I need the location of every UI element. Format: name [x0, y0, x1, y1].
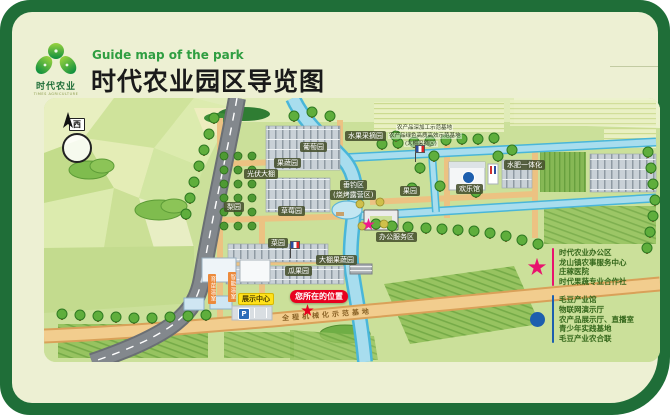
map-label: 农产品深加工示范基地	[396, 125, 453, 131]
parking-icon: P	[238, 308, 250, 320]
map-label: 农产品绿色高质高效示范基地	[388, 133, 462, 139]
legend-item: 农产品展示厅、直播室	[559, 315, 634, 325]
map-label: 果园	[400, 186, 420, 196]
map-label: 光伏大棚	[244, 169, 278, 179]
star-pink-marker-icon	[362, 218, 375, 231]
legend: 时代农业办公区龙山镇农事服务中心庄稼医院时代果蔬专业合作社 毛豆产业馆物联网演示…	[522, 248, 658, 352]
map-label: 垂钓区	[340, 180, 367, 190]
map-label: 大棚果蔬园	[316, 255, 357, 265]
map-label: 葡萄园	[300, 142, 327, 152]
legend-item: 龙山镇农事服务中心	[559, 258, 627, 268]
legend-dot-divider	[552, 295, 554, 343]
map-label: 水果采摘园	[345, 131, 386, 141]
you-are-here-label: 您所在的位置	[290, 290, 348, 303]
map-label: 育苗温室	[208, 274, 216, 304]
logo-title: 时代农业	[28, 82, 84, 92]
map-label: 欢乐馆	[456, 184, 483, 194]
green-frame: 时代农业 TIMES AGRICULTURE Guide map of the …	[0, 0, 670, 415]
legend-star-divider	[552, 248, 554, 286]
card: 时代农业 TIMES AGRICULTURE Guide map of the …	[12, 12, 658, 403]
map-label: 全程机械化示范基地	[282, 307, 372, 322]
legend-item: 时代农业办公区	[559, 248, 627, 258]
blue-dot-marker-icon	[462, 171, 475, 184]
flag-icon	[415, 145, 423, 155]
legend-star-group: 时代农业办公区龙山镇农事服务中心庄稼医院时代果蔬专业合作社	[522, 248, 658, 286]
legend-item: 毛豆产业馆	[559, 295, 634, 305]
logo-icon	[33, 42, 79, 78]
map-label: 梨园	[224, 202, 244, 212]
map-label: 菜园	[268, 238, 288, 248]
map-label: 办公服务区	[376, 232, 417, 242]
header-divider	[610, 66, 658, 67]
legend-dot-group: 毛豆产业馆物联网演示厅农产品展示厅、直播室青少年实践基地毛豆产业农合联	[522, 295, 658, 343]
legend-star-items: 时代农业办公区龙山镇农事服务中心庄稼医院时代果蔬专业合作社	[559, 248, 627, 286]
legend-item: 物联网演示厅	[559, 305, 634, 315]
page: 时代农业 TIMES AGRICULTURE Guide map of the …	[0, 0, 670, 415]
map-label: 草莓园	[278, 206, 305, 216]
map-label: 水肥一体化	[504, 160, 545, 170]
map-label: (烧烤露营区)	[330, 190, 376, 200]
legend-item: 庄稼医院	[559, 267, 627, 277]
legend-item: 时代果蔬专业合作社	[559, 277, 627, 287]
legend-item: 毛豆产业农合联	[559, 334, 634, 344]
park-map: 西 水果采摘园葡萄园果蔬园光伏大棚垂钓区(烧烤露营区)果园欢乐馆水肥一体化梨园草…	[44, 98, 660, 362]
dot-icon	[530, 312, 545, 327]
map-label: 果蔬园	[274, 158, 301, 168]
page-title: 时代农业园区导览图	[91, 62, 325, 98]
header-logo: 时代农业 TIMES AGRICULTURE	[28, 42, 84, 100]
legend-dot-items: 毛豆产业馆物联网演示厅农产品展示厅、直播室青少年实践基地毛豆产业农合联	[559, 295, 634, 343]
map-label: 展示中心	[238, 293, 274, 305]
flag-icon	[290, 241, 298, 251]
legend-star-icon-cell	[522, 258, 552, 277]
logo-subtitle: TIMES AGRICULTURE	[28, 92, 84, 96]
legend-dot-icon-cell	[522, 312, 552, 327]
map-label: 智能温室	[228, 272, 236, 302]
star-icon	[528, 258, 547, 277]
legend-item: 青少年实践基地	[559, 324, 634, 334]
map-label: 瓜果园	[285, 266, 312, 276]
header-subtitle-en: Guide map of the park	[92, 48, 244, 62]
